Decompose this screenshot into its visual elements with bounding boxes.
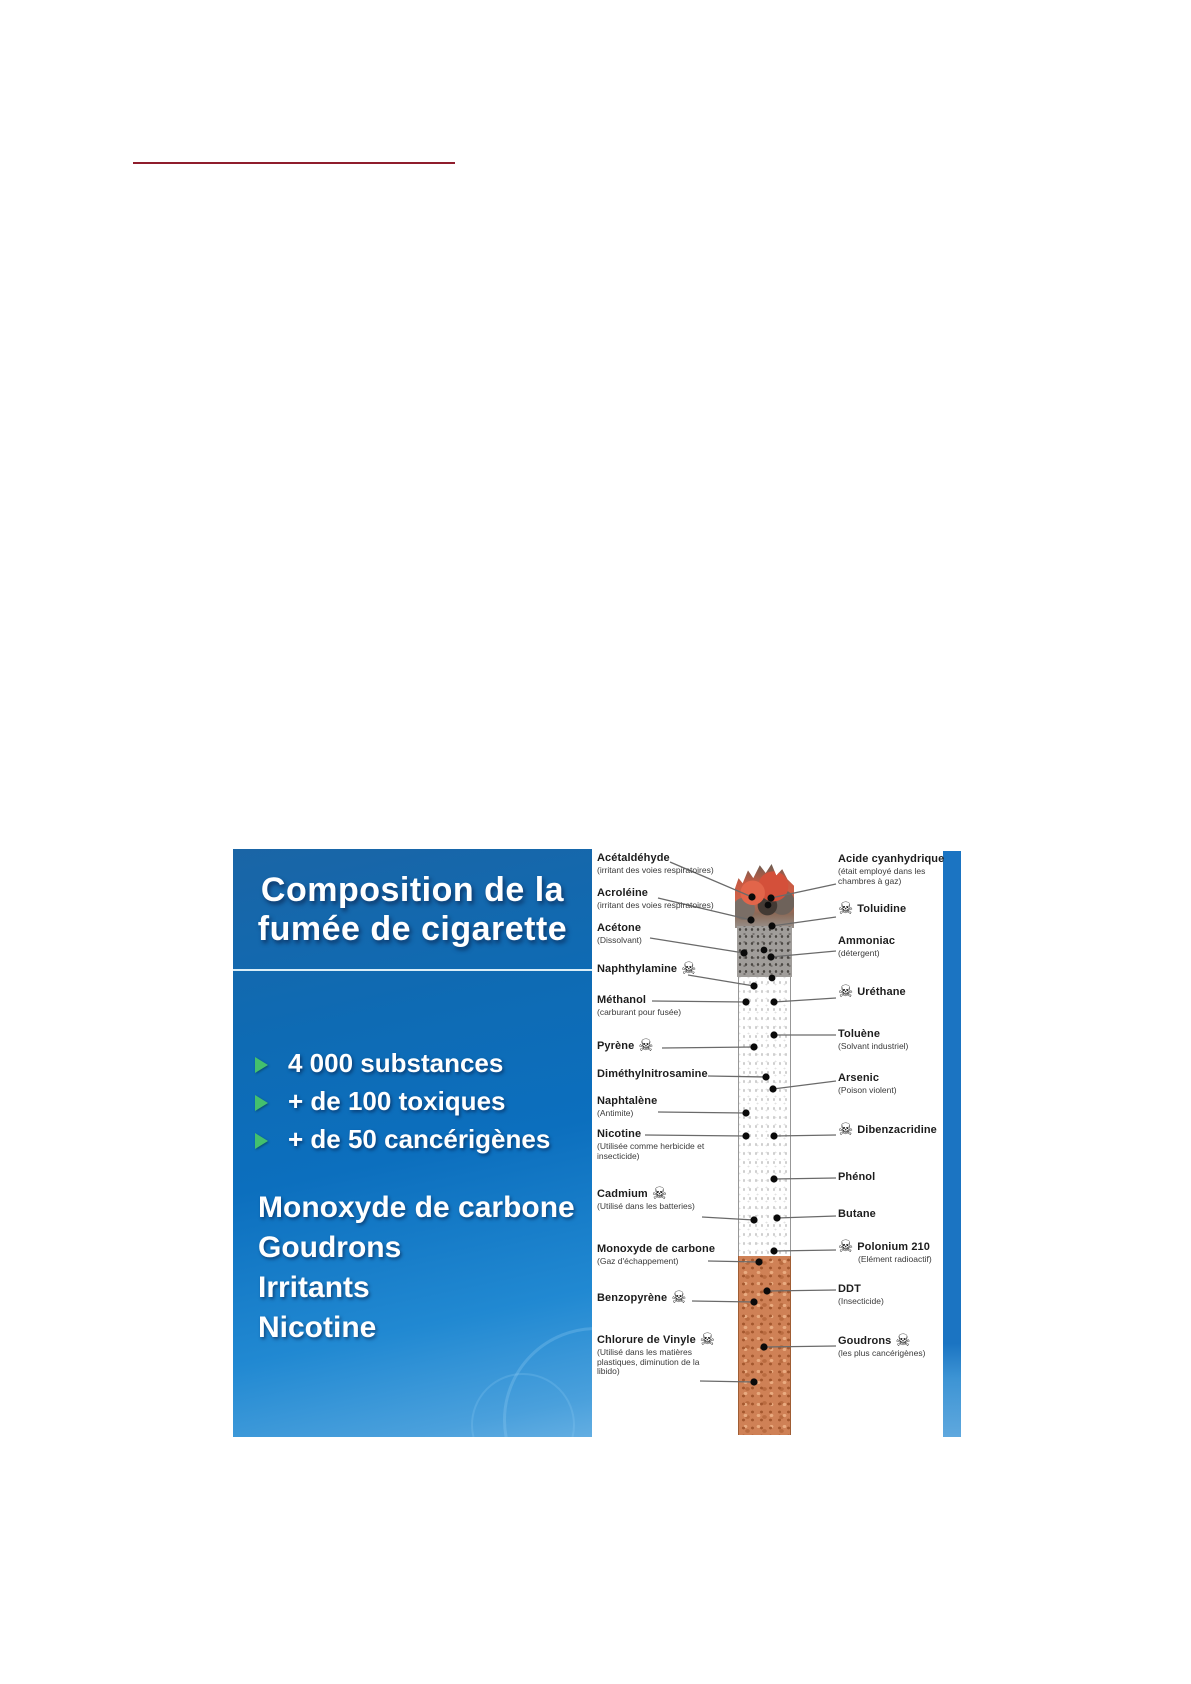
chemical-name: Nicotine: [597, 1128, 641, 1140]
slide-title: Composition de la fumée de cigarette: [233, 871, 592, 949]
chemical-name: Arsenic: [838, 1072, 879, 1084]
title-divider-line: [233, 969, 592, 971]
red-horizontal-rule: [133, 162, 455, 164]
chemical-label: Naphthylamine☠: [597, 963, 719, 975]
chemical-note: (Antimite): [597, 1109, 719, 1119]
chemical-label: Monoxyde de carbone(Gaz d'échappement): [597, 1243, 719, 1267]
chemical-name: Chlorure de Vinyle: [597, 1334, 696, 1346]
chemical-note: (Dissolvant): [597, 936, 719, 946]
bullet-item: 4 000 substances: [253, 1046, 583, 1084]
green-arrow-icon: [255, 1057, 268, 1073]
chemical-note: (carburant pour fusée): [597, 1008, 719, 1018]
chemical-name: Pyrène: [597, 1040, 634, 1052]
chemical-note: (Gaz d'échappement): [597, 1257, 719, 1267]
green-arrow-icon: [255, 1095, 268, 1111]
chemical-label: Goudrons☠(les plus cancérigènes): [838, 1335, 960, 1359]
chemical-note: (détergent): [838, 949, 960, 959]
chemical-label: Pyrène☠: [597, 1040, 719, 1052]
green-arrow-icon: [255, 1133, 268, 1149]
chemical-name: Benzopyrène: [597, 1292, 667, 1304]
chemical-label: Cadmium☠(Utilisé dans les batteries): [597, 1188, 719, 1212]
chemical-name: Goudrons: [838, 1335, 891, 1347]
chemical-label: Benzopyrène☠: [597, 1292, 719, 1304]
skull-crossbones-icon: ☠: [838, 1124, 853, 1136]
chemical-label: Toluène(Solvant industriel): [838, 1028, 960, 1052]
chemical-label: Acroléine(irritant des voies respiratoir…: [597, 887, 719, 911]
skull-crossbones-icon: ☠: [838, 986, 853, 998]
chemical-note: (irritant des voies respiratoires): [597, 866, 719, 876]
chemical-note: (irritant des voies respiratoires): [597, 901, 719, 911]
substance-list: Monoxyde de carbone Goudrons Irritants N…: [258, 1191, 588, 1351]
chemical-name: Phénol: [838, 1171, 875, 1183]
chemical-note: (Solvant industriel): [838, 1042, 960, 1052]
skull-crossbones-icon: ☠: [838, 903, 853, 915]
skull-crossbones-icon: ☠: [671, 1292, 686, 1304]
chemical-label: Acétaldéhyde(irritant des voies respirat…: [597, 852, 719, 876]
chemical-note: libido): [597, 1367, 719, 1377]
chemical-name: Monoxyde de carbone: [597, 1243, 715, 1255]
chemical-name: Cadmium: [597, 1188, 648, 1200]
chemical-name: Acétone: [597, 922, 641, 934]
chemical-label: Chlorure de Vinyle☠(Utilisé dans les mat…: [597, 1334, 719, 1377]
chemical-name: Uréthane: [857, 986, 905, 998]
slide-title-line1: Composition de la: [233, 871, 592, 910]
bullet-label: 4 000 substances: [288, 1048, 503, 1079]
chemical-name: Toluène: [838, 1028, 880, 1040]
substance-item: Goudrons: [258, 1231, 588, 1271]
chemical-name: Toluidine: [857, 903, 906, 915]
skull-crossbones-icon: ☠: [681, 963, 696, 975]
chemical-name: Polonium 210: [857, 1241, 930, 1253]
chemical-note: (Insecticide): [838, 1297, 960, 1307]
bullet-label: + de 50 cancérigènes: [288, 1124, 550, 1155]
chemical-label: Acide cyanhydrique(était employé dans le…: [838, 853, 960, 886]
chemical-label: Nicotine(Utilisée comme herbicide etinse…: [597, 1128, 719, 1161]
chemical-label: Phénol: [838, 1171, 960, 1183]
chemical-name: Diméthylnitrosamine: [597, 1068, 708, 1080]
skull-crossbones-icon: ☠: [838, 1241, 853, 1253]
chemical-note: (Poison violent): [838, 1086, 960, 1096]
skull-crossbones-icon: ☠: [638, 1040, 653, 1052]
document-page: Composition de la fumée de cigarette 4 0…: [0, 0, 1191, 1684]
substance-item: Monoxyde de carbone: [258, 1191, 588, 1231]
skull-crossbones-icon: ☠: [700, 1334, 715, 1346]
skull-crossbones-icon: ☠: [895, 1335, 910, 1347]
chemical-label: ☠Polonium 210(Elément radioactif): [838, 1241, 960, 1265]
chemical-name: DDT: [838, 1283, 861, 1295]
bullet-list: 4 000 substances + de 100 toxiques + de …: [253, 1046, 583, 1160]
chemical-label: Acétone(Dissolvant): [597, 922, 719, 946]
chemical-label: Ammoniac(détergent): [838, 935, 960, 959]
chemical-label: Méthanol(carburant pour fusée): [597, 994, 719, 1018]
chemical-label: Naphtalène(Antimite): [597, 1095, 719, 1119]
chemical-name: Ammoniac: [838, 935, 895, 947]
slide-blue-panel: Composition de la fumée de cigarette 4 0…: [233, 849, 592, 1437]
cigarette-filter-butt: [738, 1256, 791, 1435]
chemical-note: chambres à gaz): [838, 877, 960, 887]
cigarette-ash: [737, 926, 792, 977]
chemical-label: DDT(Insecticide): [838, 1283, 960, 1307]
chemical-name: Dibenzacridine: [857, 1124, 937, 1136]
chemical-name: Acide cyanhydrique: [838, 853, 944, 865]
chemical-label: Butane: [838, 1208, 960, 1220]
substance-item: Irritants: [258, 1271, 588, 1311]
chemical-name: Naphthylamine: [597, 963, 677, 975]
chemical-name: Acétaldéhyde: [597, 852, 670, 864]
chemical-label: Arsenic(Poison violent): [838, 1072, 960, 1096]
chemical-name: Naphtalène: [597, 1095, 657, 1107]
chemical-label: ☠Uréthane: [838, 986, 960, 998]
slide-title-line2: fumée de cigarette: [233, 910, 592, 949]
chemical-note: (les plus cancérigènes): [838, 1349, 960, 1359]
chemical-label: ☠Toluidine: [838, 903, 960, 915]
substance-item: Nicotine: [258, 1311, 588, 1351]
chemical-note: (Utilisé dans les batteries): [597, 1202, 719, 1212]
skull-crossbones-icon: ☠: [652, 1188, 667, 1200]
chemical-label: ☠Dibenzacridine: [838, 1124, 960, 1136]
chemical-name: Butane: [838, 1208, 876, 1220]
chemical-label: Diméthylnitrosamine: [597, 1068, 719, 1080]
cigarette-body: [738, 977, 791, 1256]
chemical-note: insecticide): [597, 1152, 719, 1162]
bullet-item: + de 100 toxiques: [253, 1084, 583, 1122]
chemical-note: (Elément radioactif): [858, 1255, 960, 1265]
bullet-label: + de 100 toxiques: [288, 1086, 505, 1117]
bullet-item: + de 50 cancérigènes: [253, 1122, 583, 1160]
chemical-name: Acroléine: [597, 887, 648, 899]
chemical-name: Méthanol: [597, 994, 646, 1006]
